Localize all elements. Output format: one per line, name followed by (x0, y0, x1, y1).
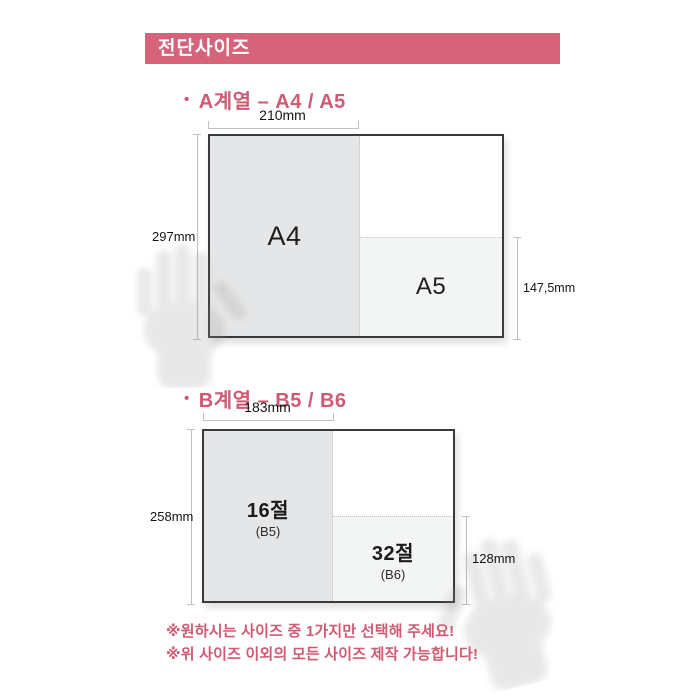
bullet-icon: • (184, 90, 190, 110)
b5-region: 16절 (B5) (204, 431, 333, 601)
b6-sub-label: (B6) (381, 567, 406, 582)
a5-region: A5 (360, 237, 502, 336)
footnotes: ※원하시는 사이즈 중 1가지만 선택해 주세요! ※위 사이즈 이외의 모든 … (166, 620, 478, 666)
b6-height-measure-line (462, 516, 470, 605)
bullet-icon: • (184, 389, 190, 409)
b5-height-dimension: 258mm (150, 509, 193, 524)
a-series-sheet: A4 A5 (208, 134, 504, 338)
a4-label: A4 (267, 221, 301, 252)
b-series-sheet: 16절 (B5) 32절 (B6) (202, 429, 455, 603)
b6-height-dimension: 128mm (472, 551, 515, 566)
b5-width-dimension: 183mm (203, 399, 332, 415)
a5-height-dimension: 147,5mm (523, 281, 575, 295)
page-title: 전단사이즈 (158, 38, 250, 59)
flyer-size-infographic: 전단사이즈 • A계열 – A4 / A5 A4 A5 210mm 297mm … (0, 0, 700, 700)
a4-width-dimension: 210mm (208, 107, 357, 123)
a4-region: A4 (210, 136, 360, 336)
footnote-line: ※원하시는 사이즈 중 1가지만 선택해 주세요! (166, 620, 478, 643)
footnote-line: ※위 사이즈 이외의 모든 사이즈 제작 가능합니다! (166, 643, 478, 666)
header-bar: 전단사이즈 (145, 33, 560, 64)
a5-label: A5 (416, 273, 446, 301)
a4-height-dimension: 297mm (152, 229, 195, 244)
b6-region: 32절 (B6) (333, 516, 453, 601)
b5-label: 16절 (247, 494, 289, 523)
a5-height-measure-line (513, 237, 521, 340)
b5-sub-label: (B5) (256, 524, 281, 539)
b6-label: 32절 (372, 537, 414, 566)
